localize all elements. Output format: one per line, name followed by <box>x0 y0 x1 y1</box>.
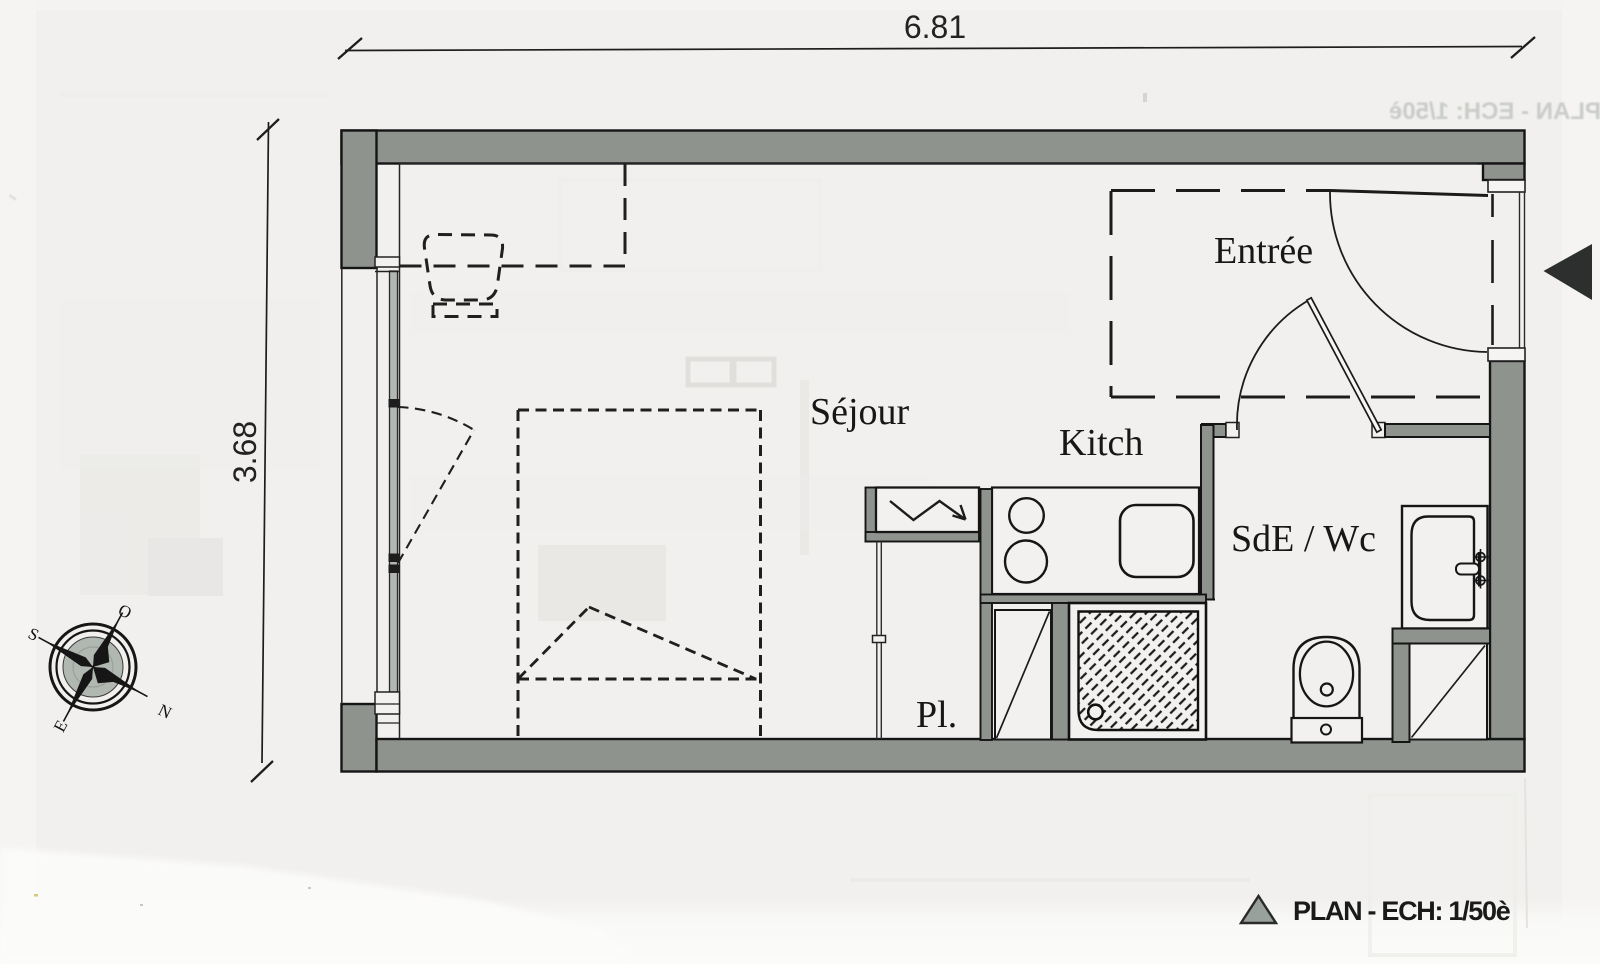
svg-text:Séjour: Séjour <box>810 391 910 433</box>
svg-text:Kitch: Kitch <box>1059 422 1143 464</box>
svg-text:3.68: 3.68 <box>227 421 263 483</box>
svg-text:SdE / Wc: SdE / Wc <box>1231 518 1376 560</box>
svg-text:Entrée: Entrée <box>1214 230 1313 272</box>
svg-text:PLAN - ECH: 1/50è: PLAN - ECH: 1/50è <box>1293 896 1511 926</box>
svg-text:6.81: 6.81 <box>904 9 966 45</box>
svg-text:PLAN - ECH: 1/50è: PLAN - ECH: 1/50è <box>1389 98 1600 125</box>
svg-text:Pl.: Pl. <box>916 694 957 736</box>
